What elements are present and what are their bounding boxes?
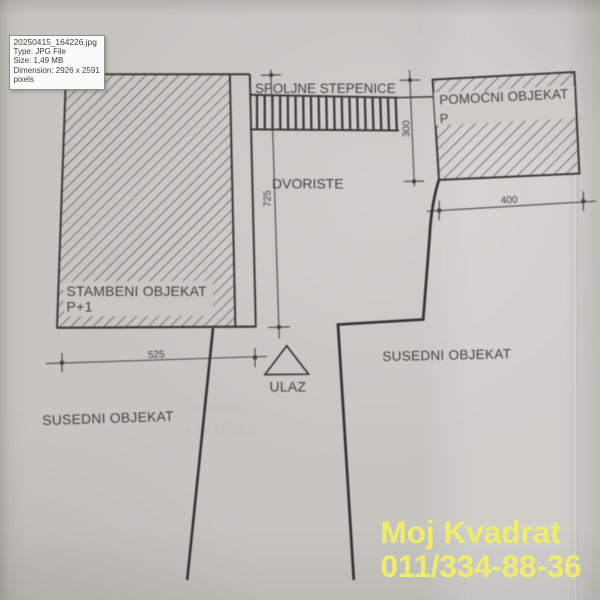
svg-text:DVORISTE: DVORISTE (272, 175, 344, 191)
svg-text:ASVSEYES: ASVSEYES (185, 422, 257, 436)
svg-text:AUVHIA: AUVHIA (192, 403, 243, 417)
svg-text:300: 300 (401, 120, 412, 137)
svg-text:P: P (439, 111, 448, 126)
svg-text:STAMBENI OBJEKAT: STAMBENI OBJEKAT (67, 283, 208, 299)
svg-text:P+1: P+1 (67, 298, 93, 314)
svg-text:SPOLJNE STEPENICE: SPOLJNE STEPENICE (255, 81, 396, 96)
svg-text:SUSEDNI OBJEKAT: SUSEDNI OBJEKAT (42, 409, 174, 428)
svg-text:725: 725 (262, 190, 273, 207)
svg-text:400: 400 (501, 195, 519, 207)
svg-text:SUSEDNI OBJEKAT: SUSEDNI OBJEKAT (382, 346, 511, 364)
svg-text:525: 525 (148, 349, 165, 361)
svg-text:ULAZ: ULAZ (270, 380, 307, 395)
